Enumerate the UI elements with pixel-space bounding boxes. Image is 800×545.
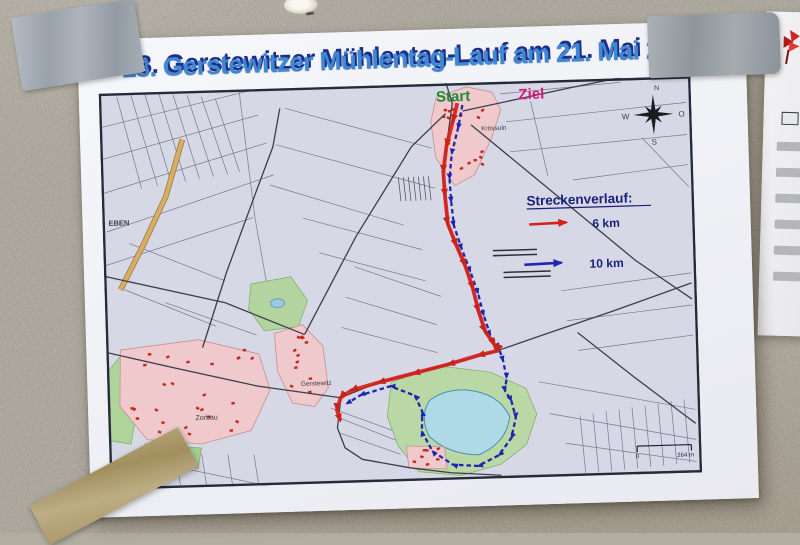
side-paper-textline — [777, 142, 800, 152]
building-dot — [161, 421, 164, 423]
scale-end: 264 m — [677, 453, 694, 459]
side-paper-textline — [774, 220, 800, 230]
side-paper-figure — [781, 112, 798, 125]
map-area: Start Ziel Krössuln EBEN Zorbau Gerstewi… — [99, 76, 703, 490]
side-paper-textline — [776, 168, 800, 178]
village-zorbau — [118, 338, 272, 447]
building-dot — [444, 109, 448, 112]
ziel-label: Ziel — [518, 86, 544, 104]
place-zorbau: Zorbau — [195, 414, 218, 422]
start-label: Start — [436, 88, 471, 106]
building-dot — [148, 353, 152, 356]
compass-o: O — [678, 109, 685, 118]
building-dot — [436, 458, 439, 461]
building-dot — [210, 363, 213, 365]
side-paper-textline — [773, 272, 800, 282]
building-dot — [136, 417, 139, 419]
building-dot — [425, 449, 429, 452]
compass-n: N — [654, 85, 659, 92]
side-paper-textline — [774, 246, 800, 256]
pond — [270, 299, 284, 308]
compass-w: W — [622, 112, 630, 121]
legend-10km: 10 km — [589, 256, 624, 271]
topographic-map: Start Ziel Krössuln EBEN Zorbau Gerstewi… — [99, 76, 703, 490]
tape-top-right — [647, 12, 781, 79]
place-left-edge: EBEN — [108, 218, 129, 228]
building-dot — [243, 349, 247, 352]
place-gerstewitz: Gerstewitz — [301, 380, 332, 388]
side-paper-textline — [775, 194, 800, 204]
photo-scene: 18. Gerstewitzer Mühlentag-Lauf am 21. M… — [0, 0, 800, 533]
wall-speck — [306, 11, 314, 15]
place-top-village: Krössuln — [481, 125, 507, 133]
compass-s: S — [651, 137, 657, 146]
building-dot — [473, 159, 476, 161]
legend-6km: 6 km — [592, 216, 620, 231]
